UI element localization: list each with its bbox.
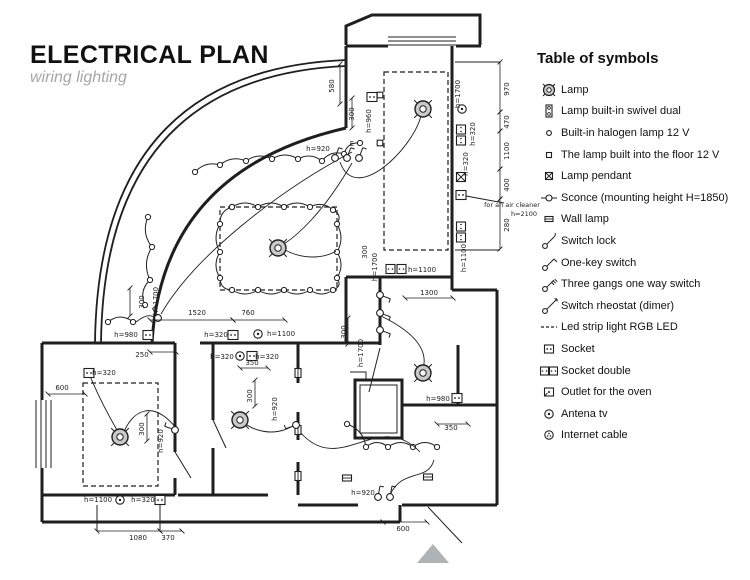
legend-item: Switch rheostat (dimer)	[537, 295, 749, 317]
wiring-line	[381, 316, 424, 369]
plan-label: h=1100	[460, 244, 468, 272]
legend-item-label: Antena tv	[561, 408, 607, 420]
halogen-lamp-symbol	[295, 156, 300, 161]
page-subtitle: wiring lighting	[30, 70, 269, 87]
sconce-icon	[537, 189, 561, 207]
wiring-line	[90, 376, 117, 430]
single-socket-symbol	[143, 331, 153, 340]
halogen-lamp-symbol	[330, 207, 335, 212]
halogen-lamp-symbol	[147, 277, 152, 282]
halogen-lamp-symbol	[217, 275, 222, 280]
antena-tv-icon	[537, 405, 561, 423]
plan-label: 760	[241, 309, 254, 317]
halogen-lamp-symbol	[229, 204, 234, 209]
plan-label: for an air cleaner	[484, 201, 540, 209]
plan-label: 400	[503, 178, 511, 191]
plan-label: h=1700	[454, 80, 462, 108]
plan-label: h=2100	[511, 210, 537, 218]
antena-tv-symbol	[236, 352, 244, 360]
legend-item: Lamp	[537, 79, 749, 101]
legend-item-label: Internet cable	[561, 429, 628, 441]
single-socket-symbol	[452, 394, 462, 403]
dimension-line	[128, 286, 133, 319]
plan-label: h=320	[131, 496, 155, 504]
lamp-symbol	[414, 364, 432, 382]
legend-title: Table of symbols	[537, 50, 749, 67]
legend-item: Lamp pendant	[537, 165, 749, 187]
legend-item-label: Lamp built-in swivel dual	[561, 105, 681, 117]
antena-tv-symbol	[254, 330, 262, 338]
legend-item: Socket double	[537, 360, 749, 382]
halogen-lamp-symbol	[145, 214, 150, 219]
halogen-lamp-symbol	[217, 162, 222, 167]
plan-label: h=320	[462, 152, 470, 176]
wall-lamp-symbol	[424, 474, 433, 480]
legend-item: Wall lamp	[537, 209, 749, 231]
single-socket-symbol	[228, 331, 238, 340]
legend-item-label: Switch rheostat (dimer)	[561, 300, 674, 312]
dimension-line	[498, 167, 503, 202]
dimension-line	[158, 529, 185, 534]
legend-item-label: Socket double	[561, 365, 631, 377]
legend-item: Socket	[537, 338, 749, 360]
legend-item-label: The lamp built into the floor 12 V	[561, 149, 719, 161]
lamp-symbol	[414, 100, 432, 118]
plan-label: h=1100	[84, 496, 112, 504]
plan-label: h=920	[351, 489, 375, 497]
wall-detail	[428, 507, 462, 543]
halogen-lamp-symbol	[229, 287, 234, 292]
double-socket-symbol	[457, 222, 466, 242]
legend-item: Antena tv	[537, 403, 749, 425]
legend-item-label: Wall lamp	[561, 213, 609, 225]
wall-detail	[213, 420, 226, 448]
dimension-line	[381, 520, 430, 525]
legend-item: Built-in halogen lamp 12 V	[537, 122, 749, 144]
dimension-line	[338, 62, 343, 107]
dimension-line	[498, 129, 503, 172]
dimension-line	[46, 392, 88, 397]
legend-item: Internet cable	[537, 425, 749, 447]
switch-symbol	[375, 486, 384, 500]
plan-label: 300	[138, 295, 146, 308]
single-socket-symbol	[456, 191, 466, 200]
legend-rows: LampLamp built-in swivel dualBuilt-in ha…	[537, 79, 749, 446]
plan-label: 350	[245, 359, 258, 367]
dimension-line	[498, 60, 503, 115]
switch-lock-icon	[537, 232, 561, 250]
wall-lamp-symbol	[295, 472, 301, 481]
plan-label: Е	[350, 140, 354, 148]
lamp-icon	[537, 81, 561, 99]
plan-label: h=1700	[371, 253, 379, 281]
plan-label: h=960	[365, 109, 373, 133]
halogen-lamp-symbol	[281, 204, 286, 209]
internet-cable-icon	[537, 426, 561, 444]
plan-label: h=920	[306, 145, 330, 153]
plan-label: h=980	[426, 395, 450, 403]
plan-label: h=320	[469, 122, 477, 146]
symbols-legend: Table of symbols LampLamp built-in swive…	[537, 50, 749, 446]
plan-label: 300	[138, 422, 146, 435]
legend-item: Three gangs one way switch	[537, 273, 749, 295]
legend-item-label: Outlet for the oven	[561, 386, 652, 398]
legend-item: The lamp built into the floor 12 V	[537, 144, 749, 166]
lamp-symbol	[231, 411, 249, 429]
plan-label: 300	[246, 389, 254, 402]
wall-lamp-icon	[537, 210, 561, 228]
double-socket-symbol	[457, 125, 466, 145]
one-key-switch-icon	[537, 254, 561, 272]
legend-item-label: Three gangs one way switch	[561, 278, 700, 290]
halogen-lamp-symbol	[243, 158, 248, 163]
legend-item: Lamp built-in swivel dual	[537, 101, 749, 123]
halogen-lamp-symbol	[105, 319, 110, 324]
halogen-lamp-symbol	[269, 156, 274, 161]
legend-item-label: Lamp pendant	[561, 170, 631, 182]
plan-label: 470	[503, 115, 511, 128]
socket-double-icon	[537, 362, 561, 380]
floor-lamp-icon	[537, 146, 561, 164]
halogen-lamp-symbol	[281, 287, 286, 292]
legend-item-label: Sconce (mounting height H=1850)	[561, 192, 728, 204]
wall-detail	[360, 385, 397, 433]
halogen-lamp-symbol	[255, 204, 260, 209]
plan-label: h=320	[210, 353, 234, 361]
swivel-dual-lamp-icon	[537, 102, 561, 120]
double-socket-symbol	[386, 265, 406, 274]
wiring-line	[285, 250, 336, 257]
halogen-lamp-symbol	[130, 319, 135, 324]
plan-label: 600	[55, 384, 68, 392]
plan-label: h=980	[114, 331, 138, 339]
plan-label: 350	[444, 424, 457, 432]
legend-item-label: Socket	[561, 343, 595, 355]
legend-item-label: Lamp	[561, 84, 589, 96]
plan-label: h=320	[204, 331, 228, 339]
plan-label: h=1100	[408, 266, 436, 274]
switch-symbol	[332, 148, 343, 162]
halogen-lamp-symbol	[217, 249, 222, 254]
single-socket-symbol	[367, 93, 377, 102]
plan-label: h=320	[255, 353, 279, 361]
halogen-lamp-symbol	[217, 221, 222, 226]
single-socket-symbol	[155, 496, 165, 505]
plan-label: 250	[135, 351, 148, 359]
halogen-lamp-symbol	[344, 421, 349, 426]
led-strip-outline	[384, 72, 448, 250]
plan-label: 280	[503, 218, 511, 231]
floor-socket-symbol	[377, 92, 383, 98]
plan-label: 1100	[503, 142, 511, 160]
wall-detail	[175, 452, 191, 478]
antena-tv-symbol	[116, 496, 124, 504]
halogen-lamp-icon	[537, 124, 561, 142]
wall-lamp-symbol	[295, 369, 301, 378]
halogen-lamp-symbol	[307, 287, 312, 292]
legend-item-label: Led strip light RGB LED	[561, 321, 678, 333]
lamp-symbol	[269, 239, 287, 257]
halogen-lamp-symbol	[255, 287, 260, 292]
plan-label: 1080	[129, 534, 147, 542]
three-gangs-switch-icon	[537, 275, 561, 293]
plan-label: 300	[361, 245, 369, 258]
wall-lamp-symbol	[343, 475, 352, 481]
page: 580300h=960h=920Еh=1700970h=3204701100h=…	[0, 0, 750, 580]
page-title: ELECTRICAL PLAN	[30, 42, 269, 68]
floor-socket-symbol	[377, 140, 383, 146]
plan-label: 300	[340, 325, 348, 338]
plan-label: h=1700	[357, 339, 365, 367]
halogen-lamp-symbol	[357, 140, 362, 145]
plan-label: h=920	[157, 429, 165, 453]
plan-label: 600	[396, 525, 409, 533]
plan-label: 1520	[188, 309, 206, 317]
plan-label: 370	[161, 534, 174, 542]
plan-label: h=320	[92, 369, 116, 377]
legend-item-label: Switch lock	[561, 235, 616, 247]
pendant-lamp-icon	[537, 167, 561, 185]
halogen-lamp-symbol	[192, 169, 197, 174]
halogen-lamp-symbol	[330, 287, 335, 292]
drawing-header: ELECTRICAL PLAN wiring lighting	[30, 42, 269, 87]
plan-label: 970	[503, 82, 511, 95]
led-strip-icon	[537, 318, 561, 336]
dimension-line	[95, 529, 163, 534]
legend-item-label: One-key switch	[561, 257, 636, 269]
plan-label: h=1100	[267, 330, 295, 338]
plan-label: 580	[328, 79, 336, 92]
north-triangle	[417, 544, 449, 563]
wiring-line	[124, 411, 176, 432]
switch-symbol	[387, 486, 396, 500]
halogen-wire-arc	[108, 317, 133, 322]
halogen-wire-arc	[143, 217, 152, 305]
switch-symbol	[284, 422, 299, 429]
halogen-lamp-symbol	[149, 244, 154, 249]
halogen-lamp-symbol	[434, 444, 439, 449]
switch-symbol	[356, 148, 367, 162]
legend-item: Led strip light RGB LED	[537, 317, 749, 339]
switch-rheostat-icon	[537, 297, 561, 315]
curved-wall	[95, 60, 346, 343]
legend-item: Outlet for the oven	[537, 381, 749, 403]
legend-item-label: Built-in halogen lamp 12 V	[561, 127, 689, 139]
halogen-lamp-symbol	[385, 444, 390, 449]
legend-item: Switch lock	[537, 230, 749, 252]
halogen-lamp-symbol	[307, 204, 312, 209]
legend-item: One-key switch	[537, 252, 749, 274]
halogen-lamp-symbol	[334, 221, 339, 226]
wall	[355, 380, 402, 438]
plan-label: h=1700	[152, 287, 160, 315]
plan-label: 1300	[420, 289, 438, 297]
socket-icon	[537, 340, 561, 358]
halogen-lamp-symbol	[334, 275, 339, 280]
plan-label: 300	[348, 107, 356, 120]
oven-outlet-icon	[537, 383, 561, 401]
dimension-line	[231, 318, 288, 323]
halogen-lamp-symbol	[319, 158, 324, 163]
wiring-line	[243, 422, 296, 432]
plan-label: h=920	[271, 397, 279, 421]
lamp-symbol	[111, 428, 129, 446]
legend-item: Sconce (mounting height H=1850)	[537, 187, 749, 209]
halogen-lamp-symbol	[363, 444, 368, 449]
